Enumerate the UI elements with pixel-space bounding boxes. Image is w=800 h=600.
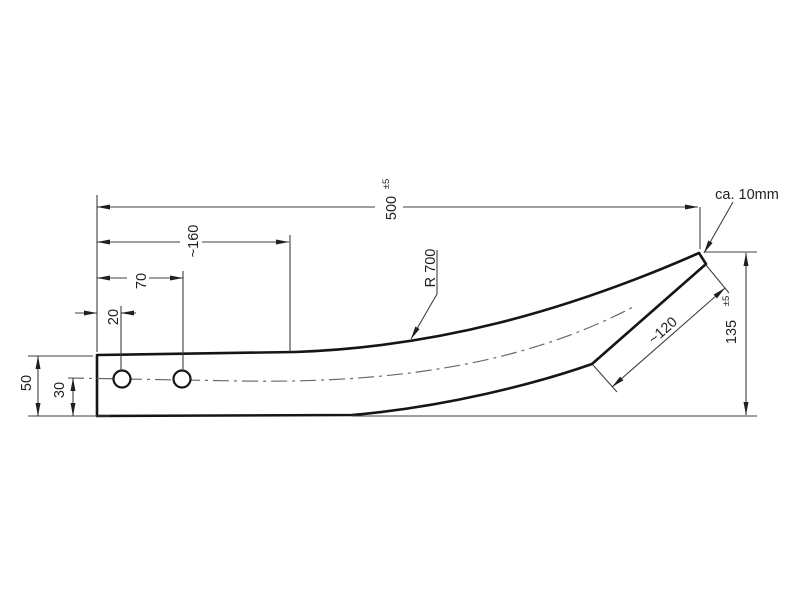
extension-line-120-upper (706, 265, 729, 293)
tip-note-label: ca. 10mm (715, 187, 779, 203)
mounting-hole-1 (114, 371, 131, 388)
tine-engineering-drawing: 500 ±5 ~160 70 20 50 30 135 ±5 ~120 R 70… (0, 0, 800, 600)
leader-tip-note (704, 202, 733, 253)
dim-500-tolerance: ±5 (381, 179, 392, 190)
dim-20-label: 20 (106, 309, 122, 325)
technical-drawing-canvas: 500 ±5 ~160 70 20 50 30 135 ±5 ~120 R 70… (0, 0, 800, 600)
dim-30-label: 30 (52, 382, 68, 398)
dim-135-tolerance: ±5 (721, 296, 732, 307)
dim-70-label: 70 (134, 273, 150, 289)
dim-160-label: ~160 (186, 225, 202, 258)
tine-outline (97, 253, 706, 416)
extension-line-120-lower (593, 365, 617, 392)
radius-700-label: R 700 (423, 249, 439, 288)
dim-50-label: 50 (19, 375, 35, 391)
dim-135-label: 135 (724, 320, 740, 344)
dim-500-label: 500 (384, 196, 400, 220)
mounting-hole-2 (174, 371, 191, 388)
